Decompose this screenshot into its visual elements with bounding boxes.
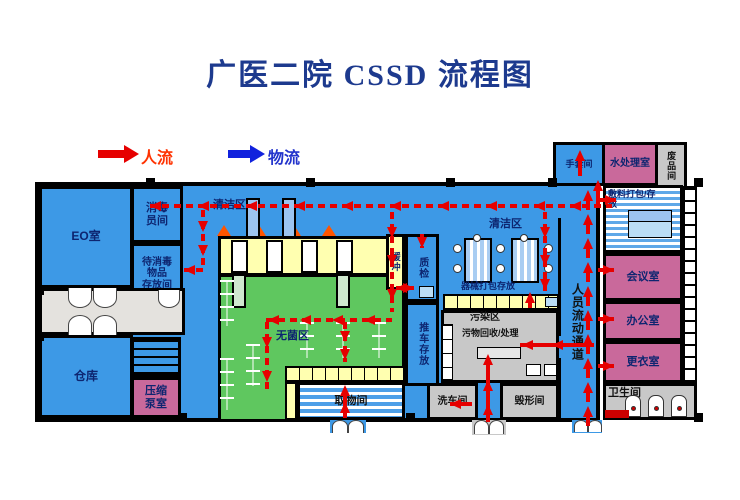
pump-room-label: 压缩 泵室 <box>145 385 167 410</box>
unloader-unit <box>232 274 246 308</box>
office: 办公室 <box>603 301 683 341</box>
flow-arrowhead <box>340 349 350 360</box>
flow-arrowhead <box>605 195 616 205</box>
flow-arrowhead <box>522 340 533 350</box>
flow-arrowhead <box>150 201 161 211</box>
qc-room-label: 质检 <box>416 257 428 279</box>
meeting-room-label: 会议室 <box>627 271 660 284</box>
door-arc <box>332 420 348 433</box>
pump-room: 压缩 泵室 <box>131 377 181 418</box>
flow-arrowhead <box>486 201 497 211</box>
flow-arrowhead <box>583 214 593 225</box>
wall-pier <box>548 178 557 187</box>
sterile-area-label: 无菌区 <box>276 330 309 343</box>
door-arc <box>158 290 180 308</box>
wall-pier <box>146 178 155 187</box>
water-treatment-room: 水处理室 <box>602 142 658 186</box>
flow-arrowhead <box>340 331 350 342</box>
changing-room-label: 更衣室 <box>627 356 660 369</box>
water-treatment-room-label: 水处理室 <box>610 158 650 170</box>
wall-pier <box>694 413 703 422</box>
flow-arrowhead <box>593 180 603 191</box>
shelf-icon <box>372 322 386 358</box>
flow-arrowhead <box>342 201 353 211</box>
sterilizer <box>336 240 353 273</box>
cssd-flow-diagram: 广医二院 CSSD 流程图 人流 物流 手套间水处理室废品间EO室消毒 员间待消… <box>0 0 740 500</box>
sink <box>526 364 541 376</box>
flow-arrowhead <box>583 310 593 321</box>
door-arc <box>348 420 364 433</box>
stool <box>453 264 462 273</box>
flow-arrowhead <box>268 315 279 325</box>
wall-pier <box>178 413 187 422</box>
deform-room: 毁形间 <box>500 383 559 420</box>
flow-arrowhead <box>294 201 305 211</box>
floor-plan: 手套间水处理室废品间EO室消毒 员间待消毒 物品 存放间仓库压缩 泵室缓冲质检推… <box>0 0 740 500</box>
shelf-icon <box>220 358 234 410</box>
sterilizer <box>301 240 318 273</box>
flow-arrowhead <box>583 382 593 393</box>
door-arc <box>474 420 489 434</box>
door-arc <box>68 315 92 335</box>
wall-pier <box>446 178 455 187</box>
flow-line <box>265 322 269 394</box>
wall-pier <box>35 286 44 295</box>
flow-arrowhead <box>438 201 449 211</box>
sterilizer <box>231 240 248 273</box>
flow-arrowhead <box>262 371 272 382</box>
flow-arrowhead <box>575 150 585 161</box>
stool <box>496 244 505 253</box>
flow-arrowhead <box>603 265 614 275</box>
wall <box>558 218 561 336</box>
wall <box>558 358 561 422</box>
changing-room: 更衣室 <box>603 341 683 383</box>
unloader-unit <box>336 274 350 308</box>
toilet-dot <box>654 406 659 411</box>
sink <box>544 364 557 376</box>
stairs-icon <box>134 340 178 374</box>
flow-arrowhead <box>300 315 311 325</box>
flow-arrowhead <box>534 201 545 211</box>
flow-arrowhead <box>390 201 401 211</box>
deform-room-label: 毁形间 <box>515 396 545 408</box>
pack-table <box>464 238 492 283</box>
small-table <box>545 297 558 307</box>
pickup-counter <box>285 366 405 382</box>
flow-arrowhead <box>483 404 493 415</box>
flow-arrowhead <box>450 399 461 409</box>
pickup-room: 取物间 <box>297 382 405 420</box>
door-arc <box>68 288 92 308</box>
door-arc <box>93 288 117 308</box>
toilet-dot <box>631 406 636 411</box>
flow-arrowhead <box>603 361 614 371</box>
meeting-room: 会议室 <box>603 253 683 301</box>
office-label: 办公室 <box>627 315 660 328</box>
flow-arrowhead <box>583 262 593 273</box>
sterilizer <box>266 240 283 273</box>
flow-arrowhead <box>198 221 208 232</box>
flow-arrowhead <box>583 286 593 297</box>
stool <box>473 234 481 242</box>
locker-column <box>442 324 453 380</box>
flow-arrowhead <box>540 227 550 238</box>
flow-arrowhead <box>483 380 493 391</box>
flow-arrowhead <box>340 402 350 413</box>
shelf-icon <box>246 344 260 386</box>
wall-pier <box>406 413 415 422</box>
stool <box>496 264 505 273</box>
flow-arrowhead <box>540 279 550 290</box>
flow-arrowhead <box>570 201 581 211</box>
stool <box>453 244 462 253</box>
scrap-room: 废品间 <box>655 142 687 190</box>
stool <box>520 234 528 242</box>
flow-arrowhead <box>417 237 427 248</box>
clean-counter <box>443 294 559 310</box>
flow-arrowhead <box>246 201 257 211</box>
warehouse: 仓库 <box>39 335 133 418</box>
flow-arrowhead <box>583 190 593 201</box>
flow-arrowhead <box>387 227 397 238</box>
flow-line <box>201 210 205 268</box>
cart-storage: 推车存放 <box>405 302 439 386</box>
wall-pier <box>694 178 703 187</box>
flow-arrowhead <box>332 315 343 325</box>
pack-table <box>511 238 539 283</box>
instrument-pack-label: 器械打包存放 <box>461 281 515 292</box>
flow-arrowhead <box>583 334 593 345</box>
flow-arrowhead <box>583 238 593 249</box>
toilet-dot <box>677 406 682 411</box>
flow-arrowhead <box>364 315 375 325</box>
waste-recycle-label: 污物回收/处理 <box>462 328 519 339</box>
wall-pier <box>35 332 44 341</box>
flow-arrowhead <box>184 265 195 275</box>
flow-arrowhead <box>198 245 208 256</box>
wall-pier <box>306 178 315 187</box>
flow-arrowhead <box>583 406 593 417</box>
vent-icon <box>322 225 336 236</box>
pickup-counter-side <box>285 382 297 420</box>
door-arc <box>93 315 117 335</box>
cart-storage-label: 推车存放 <box>416 322 428 366</box>
flow-arrowhead <box>525 292 535 303</box>
clean-area-label-right: 清洁区 <box>489 218 522 231</box>
disinfect-staff-room: 消毒 员间 <box>131 186 183 243</box>
door-arc <box>489 420 504 434</box>
qc-table <box>419 286 434 298</box>
contaminated-label: 污染区 <box>470 312 500 324</box>
eo-room: EO室 <box>39 186 133 288</box>
warehouse-label: 仓库 <box>74 370 98 384</box>
flow-arrowhead <box>387 255 397 266</box>
flow-arrowhead <box>603 314 614 324</box>
flow-arrowhead <box>540 255 550 266</box>
dressing-table-top <box>628 210 672 222</box>
vent-icon <box>217 225 231 236</box>
scrap-room-label: 废品间 <box>666 151 676 181</box>
flow-arrowhead <box>198 201 209 211</box>
flow-arrowhead <box>262 337 272 348</box>
red-marker <box>605 410 629 418</box>
flow-arrowhead <box>583 358 593 369</box>
eo-room-label: EO室 <box>71 230 100 244</box>
flow-arrowhead <box>552 340 563 350</box>
pre-disinfect-storage-label: 待消毒 物品 存放间 <box>142 257 172 292</box>
door-arc <box>588 420 602 432</box>
flow-arrowhead <box>403 283 414 293</box>
flow-arrowhead <box>340 385 350 396</box>
window-strip <box>683 186 697 383</box>
shelf-icon <box>220 280 234 326</box>
flow-arrowhead <box>483 354 493 365</box>
